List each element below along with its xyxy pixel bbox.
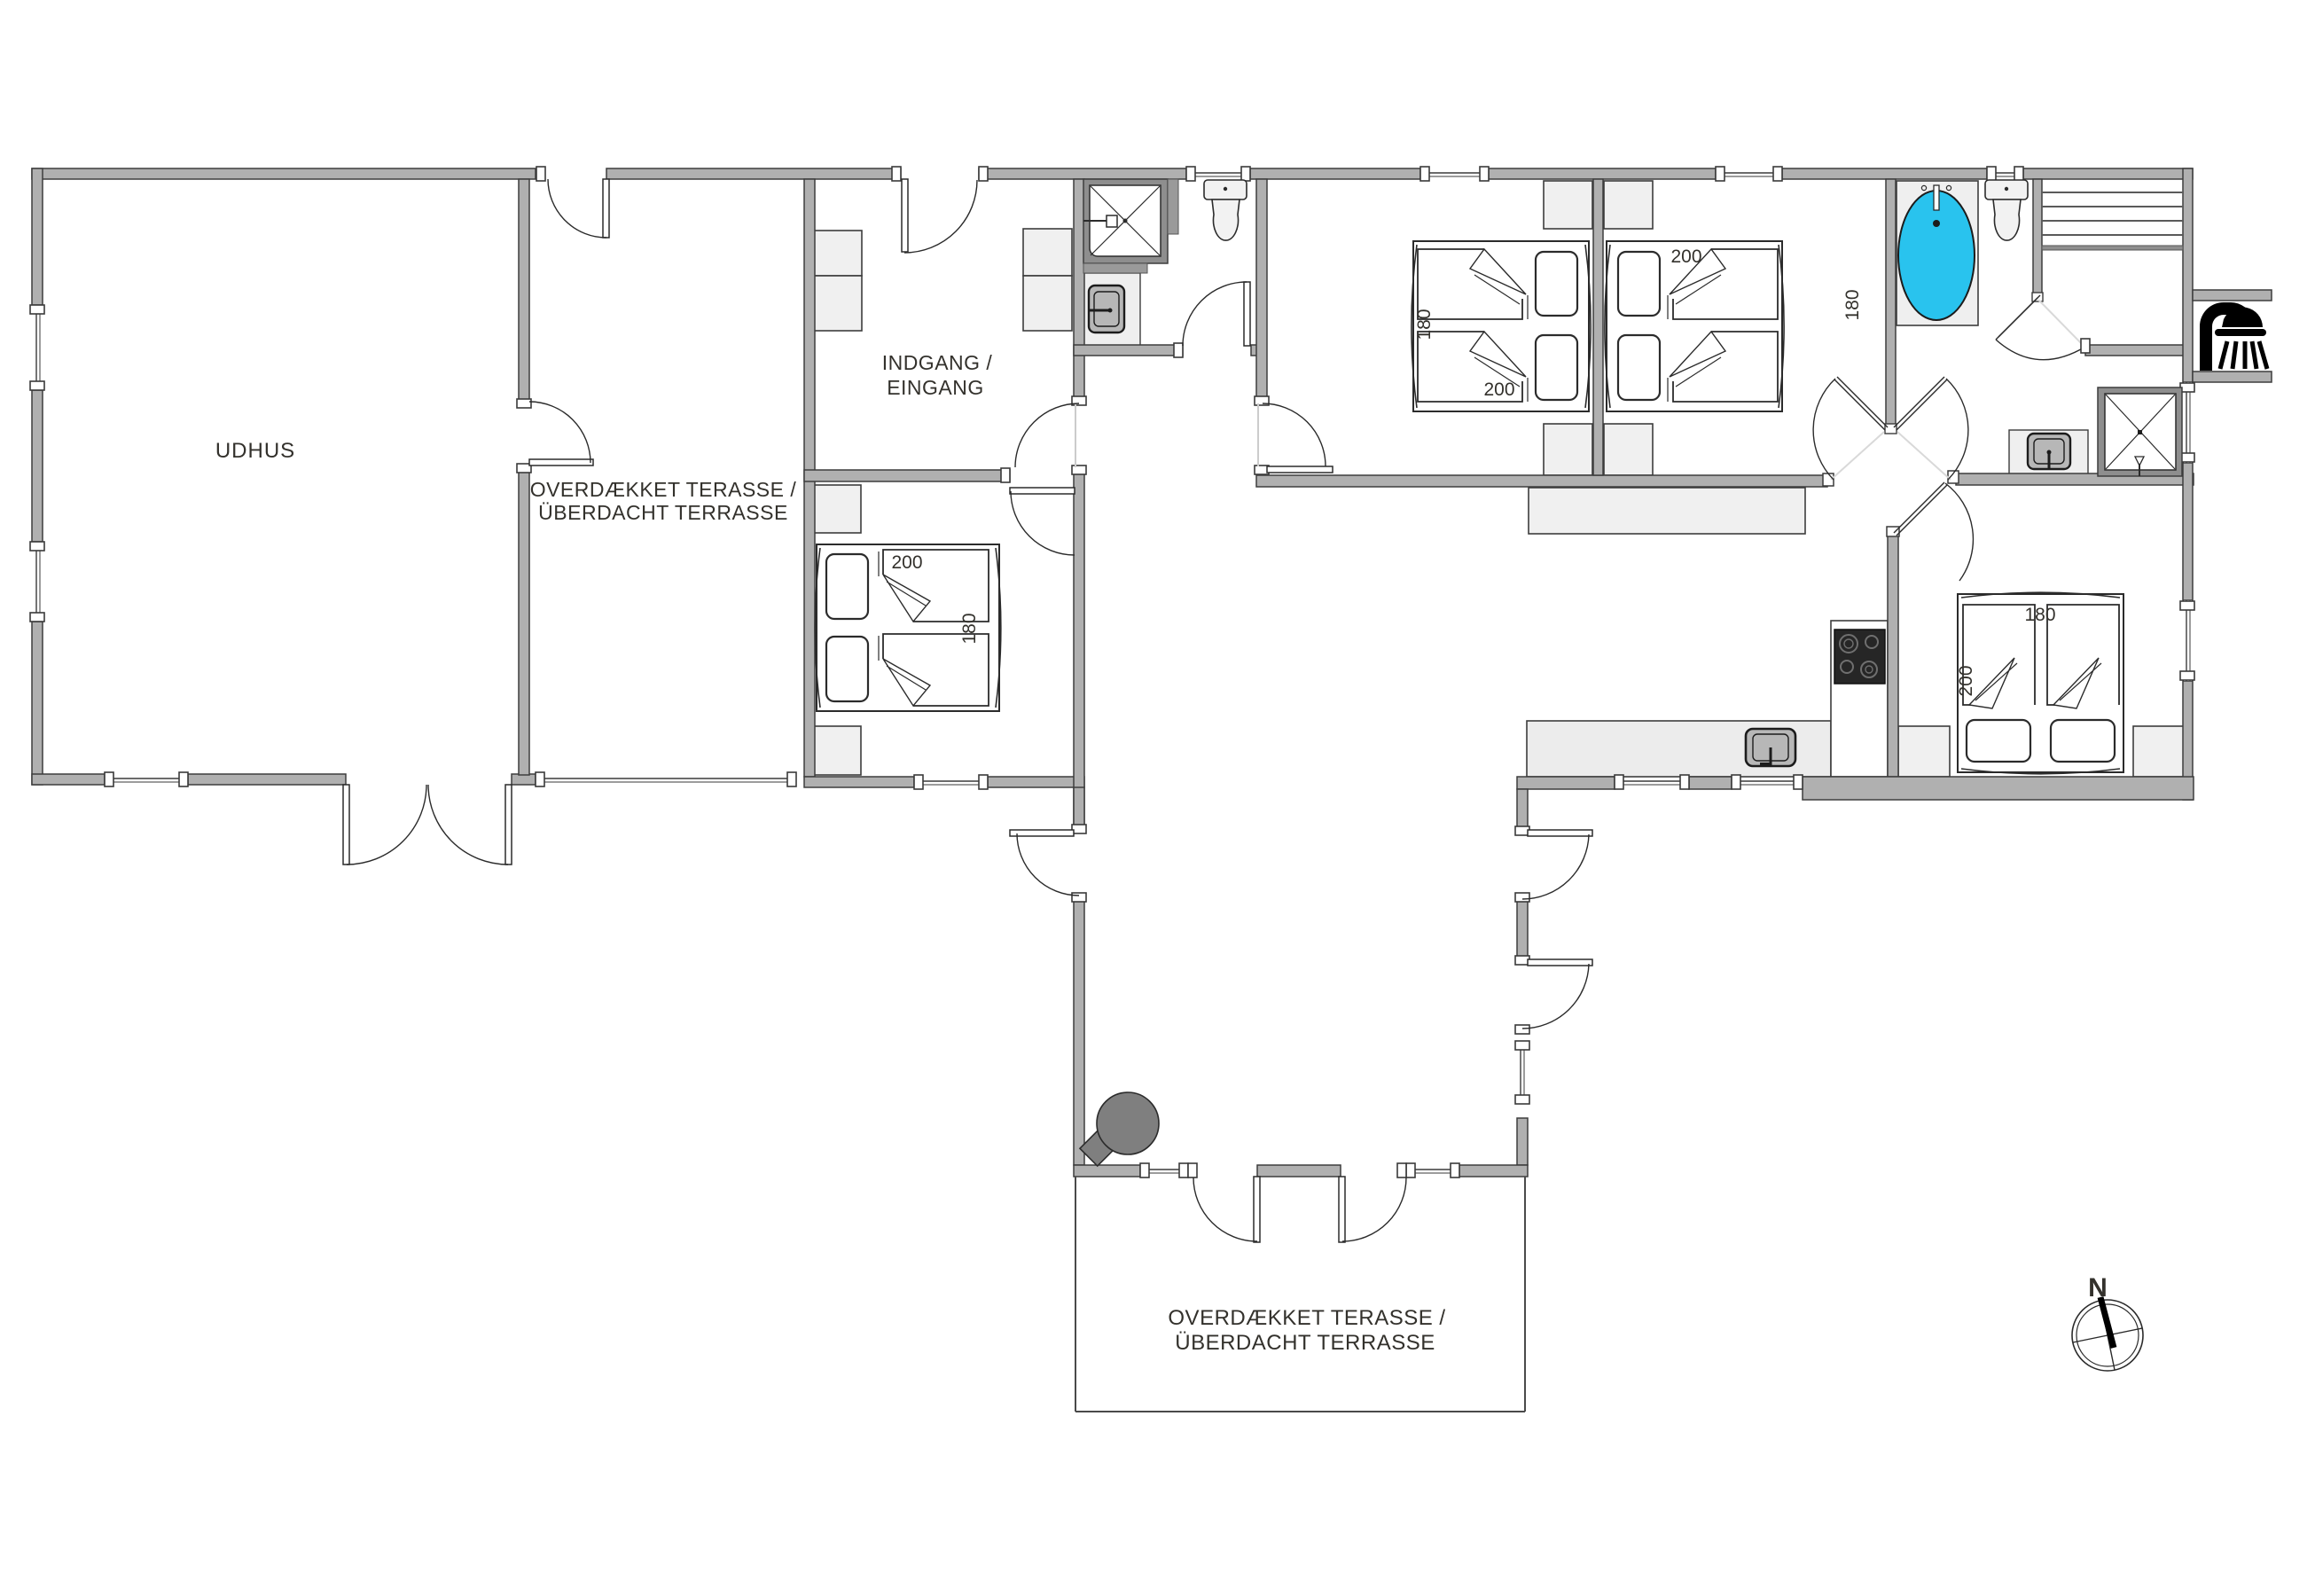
svg-text:ÜBERDACHT TERRASSE: ÜBERDACHT TERRASSE [538,501,788,524]
svg-text:180: 180 [959,613,980,644]
svg-text:180: 180 [1842,289,1863,320]
svg-text:200: 200 [1670,246,1701,267]
svg-text:200: 200 [1956,665,1976,696]
svg-text:EINGANG: EINGANG [887,376,984,399]
svg-text:OVERDÆKKET TERASSE /: OVERDÆKKET TERASSE / [530,478,797,501]
svg-text:N: N [2088,1273,2108,1303]
svg-text:180: 180 [2024,605,2055,625]
svg-text:UDHUS: UDHUS [215,439,295,463]
svg-text:180: 180 [1414,309,1435,340]
svg-text:200: 200 [891,552,922,573]
svg-text:OVERDÆKKET TERASSE /: OVERDÆKKET TERASSE / [1168,1306,1445,1330]
svg-text:ÜBERDACHT TERRASSE: ÜBERDACHT TERRASSE [1175,1331,1435,1355]
svg-text:200: 200 [1483,379,1514,400]
svg-text:INDGANG /: INDGANG / [882,351,993,374]
